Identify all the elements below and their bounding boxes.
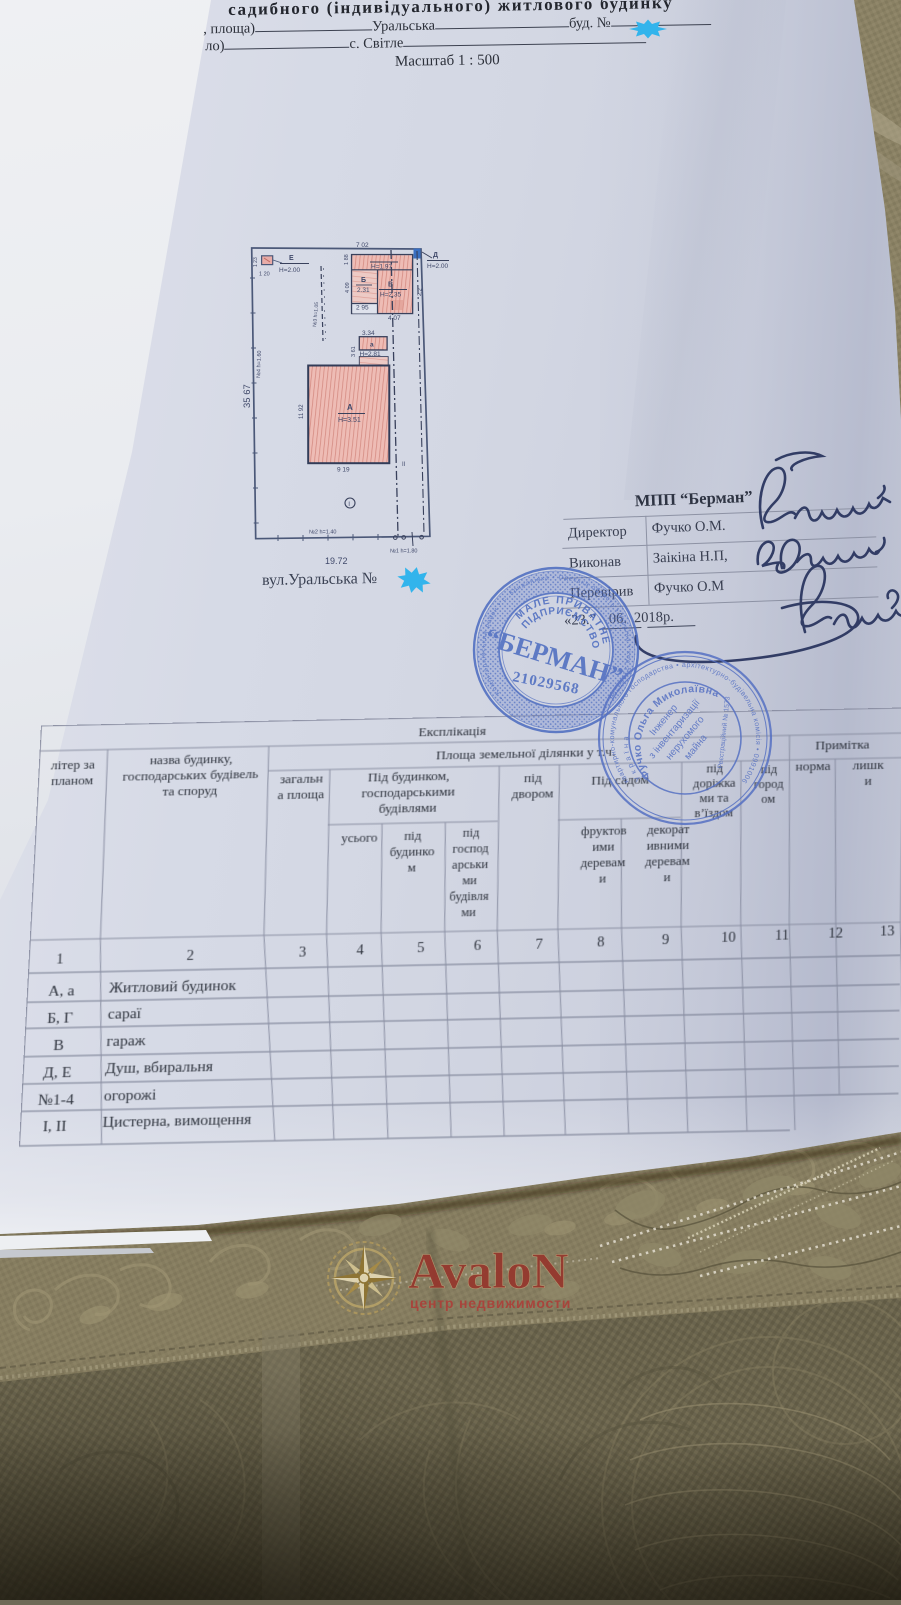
svg-text:Цистерна, вимощення: Цистерна, вимощення xyxy=(102,1111,252,1131)
svg-text:и: и xyxy=(864,773,871,788)
svg-text:А: А xyxy=(347,403,353,412)
svg-text:19.72: 19.72 xyxy=(325,556,348,566)
svg-text:4 07: 4 07 xyxy=(388,315,401,322)
svg-text:арськи: арськи xyxy=(452,857,489,872)
svg-text:будівлями: будівлями xyxy=(378,799,436,815)
svg-text:ми: ми xyxy=(462,873,478,888)
svg-text:ІІ: ІІ xyxy=(402,462,406,468)
svg-text:Б, Г: Б, Г xyxy=(47,1010,74,1027)
svg-text:5: 5 xyxy=(417,940,425,957)
svg-text:І, ІІ: І, ІІ xyxy=(42,1118,66,1135)
svg-text:літер за: літер за xyxy=(51,756,96,772)
svg-text:Реєстраційний № 1573: Реєстраційний № 1573 xyxy=(716,696,732,769)
svg-text:2 95: 2 95 xyxy=(356,305,369,312)
svg-text:Житловий будинок: Житловий будинок xyxy=(109,978,237,997)
svg-text:ивними: ивними xyxy=(646,838,689,853)
svg-text:ми: ми xyxy=(461,905,477,920)
svg-text:Е: Е xyxy=(289,255,294,262)
svg-text:9: 9 xyxy=(662,932,670,949)
svg-text:будівля: будівля xyxy=(449,889,489,904)
svg-text:планом: планом xyxy=(51,772,94,788)
svg-text:Н=2.00: Н=2.00 xyxy=(279,267,301,274)
svg-text:будинко: будинко xyxy=(390,844,435,859)
svg-text:7: 7 xyxy=(535,936,543,953)
svg-text:6: 6 xyxy=(474,938,482,955)
svg-text:під: під xyxy=(524,770,543,786)
svg-text:4 09: 4 09 xyxy=(345,282,351,293)
svg-text:12: 12 xyxy=(828,925,843,942)
svg-text:деревам: деревам xyxy=(580,855,625,870)
svg-text:В: В xyxy=(53,1037,64,1054)
svg-text:господарськими: господарськими xyxy=(361,783,455,800)
svg-text:4: 4 xyxy=(356,942,364,959)
svg-text:загальн: загальн xyxy=(280,770,324,786)
svg-text:та споруд: та споруд xyxy=(162,782,218,798)
svg-text:3.34: 3.34 xyxy=(362,330,375,337)
svg-text:1 20: 1 20 xyxy=(259,272,270,278)
svg-text:7 02: 7 02 xyxy=(356,242,369,249)
svg-text:Н=2.35: Н=2.35 xyxy=(380,292,402,299)
svg-text:10: 10 xyxy=(721,929,736,946)
svg-text:Д, Е: Д, Е xyxy=(43,1065,72,1082)
svg-text:13: 13 xyxy=(880,923,895,940)
svg-text:Н=2.00: Н=2.00 xyxy=(427,263,449,270)
svg-text:№1 h=1.80: №1 h=1.80 xyxy=(390,549,417,555)
svg-text:під: під xyxy=(404,828,422,843)
svg-text:Н=3.51: Н=3.51 xyxy=(338,417,361,424)
svg-text:№3 h=1.05: №3 h=1.05 xyxy=(312,302,320,328)
svg-text:назва будинку,: назва будинку, xyxy=(149,751,232,768)
svg-text:а площа: а площа xyxy=(277,786,324,802)
svg-text:Площа земельної ділянки у т.ч.: Площа земельної ділянки у т.ч. xyxy=(436,744,616,763)
svg-text:Примітка: Примітка xyxy=(815,736,870,752)
svg-text:ими: ими xyxy=(592,839,615,854)
svg-text:1: 1 xyxy=(56,951,64,968)
svg-text:1 88: 1 88 xyxy=(344,254,350,265)
svg-text:№2 h=1.40: №2 h=1.40 xyxy=(309,530,336,536)
svg-text:и: и xyxy=(599,871,607,885)
svg-text:Душ, вбиральня: Душ, вбиральня xyxy=(105,1059,214,1078)
svg-text:сараї: сараї xyxy=(107,1006,142,1023)
svg-text:Б: Б xyxy=(361,277,366,284)
svg-text:господарських будівель: господарських будівель xyxy=(122,766,258,784)
svg-text:Н=1.97: Н=1.97 xyxy=(371,264,393,271)
svg-text:лишк: лишк xyxy=(853,757,885,773)
svg-text:деревам: деревам xyxy=(645,854,690,869)
svg-text:центр недвижимости: центр недвижимости xyxy=(410,1295,571,1311)
svg-text:2.31: 2.31 xyxy=(357,287,370,294)
svg-text:під: під xyxy=(463,825,480,840)
svg-text:огорожі: огорожі xyxy=(103,1087,156,1105)
svg-text:и: и xyxy=(663,870,671,884)
svg-text:норма: норма xyxy=(795,758,830,774)
svg-text:а: а xyxy=(370,342,374,349)
svg-text:№1-4: №1-4 xyxy=(37,1092,74,1109)
svg-text:11 92: 11 92 xyxy=(299,404,305,419)
svg-text:№4 h=1.60: №4 h=1.60 xyxy=(256,350,263,378)
svg-text:3 61: 3 61 xyxy=(351,346,357,357)
svg-text:AvaloN: AvaloN xyxy=(408,1244,569,1300)
svg-text:усього: усього xyxy=(341,830,378,845)
svg-text:Д: Д xyxy=(433,252,438,259)
svg-text:А, а: А, а xyxy=(48,983,75,1000)
svg-text:9 19: 9 19 xyxy=(337,467,350,474)
svg-text:35 67: 35 67 xyxy=(242,384,253,408)
svg-text:господ: господ xyxy=(452,841,489,856)
svg-text:І: І xyxy=(348,501,350,508)
svg-text:8: 8 xyxy=(597,934,605,951)
svg-text:11: 11 xyxy=(775,927,789,944)
svg-text:гараж: гараж xyxy=(106,1033,146,1050)
svg-text:двором: двором xyxy=(511,785,553,801)
svg-text:3: 3 xyxy=(299,944,307,961)
svg-text:Під будинком,: Під будинком, xyxy=(368,768,450,785)
svg-text:1 23: 1 23 xyxy=(253,257,259,267)
svg-text:2: 2 xyxy=(186,947,194,964)
svg-text:м: м xyxy=(407,860,416,874)
